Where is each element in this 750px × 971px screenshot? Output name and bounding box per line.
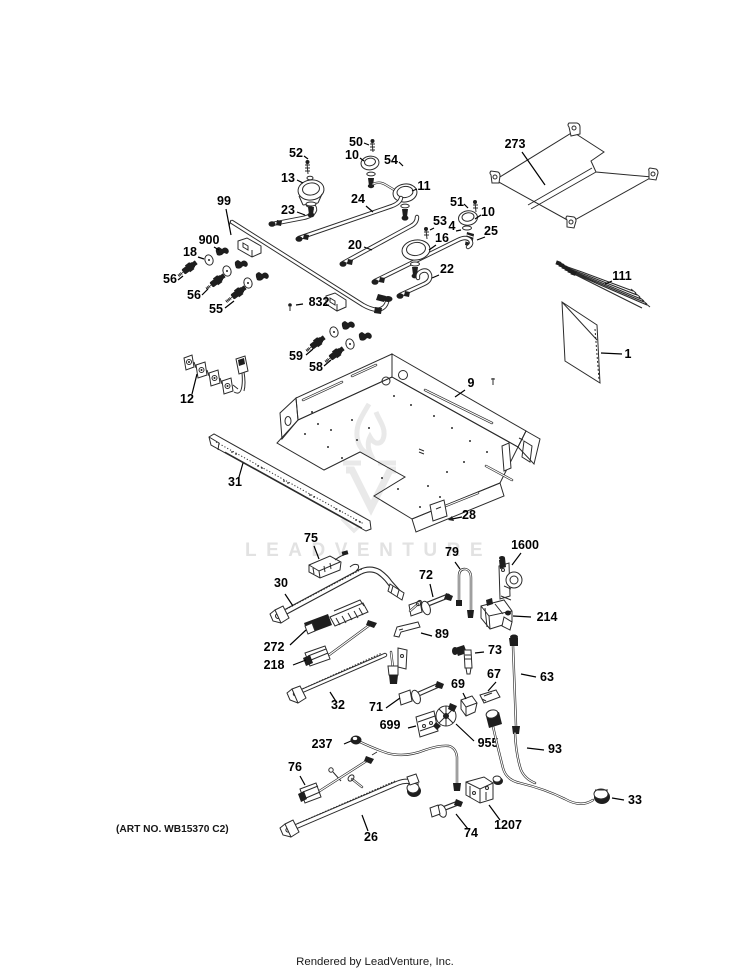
svg-text:111: 111 [612, 269, 632, 283]
svg-text:73: 73 [488, 643, 502, 657]
svg-text:23: 23 [281, 203, 295, 217]
svg-text:71: 71 [369, 700, 383, 714]
svg-text:55: 55 [209, 302, 223, 316]
svg-text:79: 79 [445, 545, 459, 559]
svg-text:272: 272 [264, 640, 285, 654]
svg-text:99: 99 [217, 194, 231, 208]
svg-text:56: 56 [187, 288, 201, 302]
svg-text:Rendered by LeadVenture, Inc.: Rendered by LeadVenture, Inc. [296, 956, 454, 968]
svg-text:58: 58 [309, 360, 323, 374]
svg-text:52: 52 [289, 146, 303, 160]
svg-text:51: 51 [450, 195, 464, 209]
svg-text:93: 93 [548, 742, 562, 756]
svg-text:273: 273 [505, 137, 526, 151]
svg-text:30: 30 [274, 576, 288, 590]
svg-text:22: 22 [440, 262, 454, 276]
svg-text:(ART NO. WB15370 C2): (ART NO. WB15370 C2) [116, 824, 229, 835]
svg-text:1: 1 [625, 347, 632, 361]
svg-text:10: 10 [345, 148, 359, 162]
svg-text:33: 33 [628, 793, 642, 807]
svg-text:74: 74 [464, 826, 478, 840]
svg-text:699: 699 [380, 718, 401, 732]
svg-text:18: 18 [183, 245, 197, 259]
svg-text:214: 214 [537, 610, 558, 624]
svg-text:89: 89 [435, 627, 449, 641]
svg-text:28: 28 [462, 508, 476, 522]
svg-text:76: 76 [288, 760, 302, 774]
svg-text:67: 67 [487, 667, 501, 681]
svg-text:72: 72 [419, 568, 433, 582]
svg-text:11: 11 [417, 179, 430, 193]
svg-text:12: 12 [180, 392, 194, 406]
svg-text:16: 16 [435, 231, 449, 245]
svg-text:1207: 1207 [494, 818, 522, 832]
svg-text:20: 20 [348, 238, 362, 252]
svg-text:4: 4 [449, 219, 456, 233]
svg-text:63: 63 [540, 670, 554, 684]
svg-text:59: 59 [289, 349, 303, 363]
svg-text:53: 53 [433, 214, 447, 228]
svg-text:32: 32 [331, 698, 345, 712]
svg-text:13: 13 [281, 171, 295, 185]
svg-text:56: 56 [163, 272, 177, 286]
svg-text:832: 832 [309, 295, 330, 309]
svg-text:50: 50 [349, 135, 363, 149]
svg-text:54: 54 [384, 153, 398, 167]
svg-text:26: 26 [364, 830, 378, 844]
svg-text:237: 237 [312, 737, 333, 751]
svg-text:218: 218 [264, 658, 285, 672]
svg-text:25: 25 [484, 224, 498, 238]
svg-text:900: 900 [199, 233, 220, 247]
svg-text:75: 75 [304, 531, 318, 545]
svg-text:24: 24 [351, 192, 365, 206]
svg-text:31: 31 [228, 475, 242, 489]
svg-text:9: 9 [468, 376, 475, 390]
svg-text:1600: 1600 [511, 538, 539, 552]
svg-text:10: 10 [481, 205, 495, 219]
svg-text:69: 69 [451, 677, 465, 691]
